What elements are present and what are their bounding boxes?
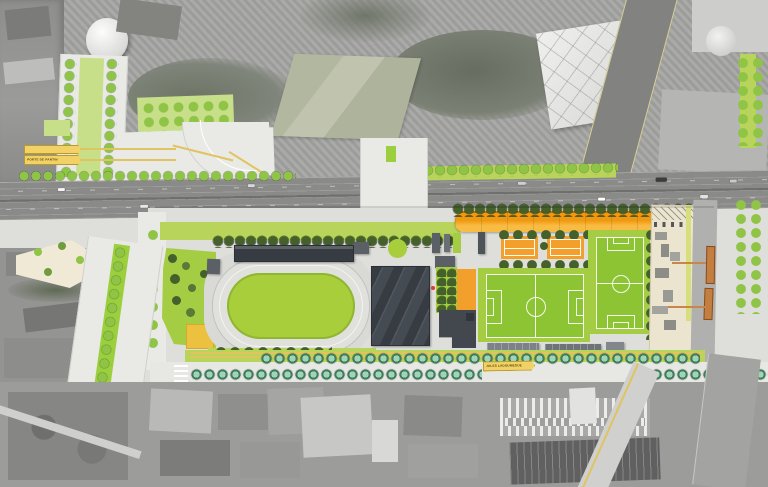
median-island [386, 146, 396, 162]
slab-building [478, 232, 485, 254]
tree-row [497, 228, 589, 239]
station-platform [706, 246, 716, 284]
roof-detail [466, 313, 474, 321]
tram-platform-labeled: JULES LADOUMEGUE [483, 361, 535, 372]
vehicle [700, 195, 708, 198]
photo-block [149, 388, 213, 433]
footbridge [668, 306, 706, 308]
photo-roof-light [300, 394, 373, 458]
soccer-field-east [596, 237, 644, 329]
tennis-court [547, 236, 584, 259]
vehicle [58, 188, 65, 191]
footprint [655, 232, 667, 240]
goal-box [613, 322, 629, 329]
court-net-line [504, 248, 535, 249]
tree [170, 274, 180, 284]
tram-stop-label-north: PORTE DE PANTIN [25, 158, 58, 161]
tram-track-line [80, 148, 176, 150]
photo-block [240, 442, 300, 478]
sports-hall-building [371, 266, 430, 346]
park-lawn [271, 54, 421, 140]
green-strip [453, 233, 461, 253]
track-infield [227, 273, 355, 339]
footprint [652, 306, 668, 314]
photo-block [160, 440, 230, 476]
vehicle [248, 184, 255, 187]
tram-platform-labeled: PORTE DE PANTIN [24, 155, 82, 165]
vehicle [730, 179, 737, 182]
vehicle-truck [656, 178, 667, 182]
footprint [661, 244, 669, 257]
vehicle [598, 198, 605, 201]
center-circle [612, 275, 630, 293]
tree [540, 242, 548, 250]
tennis-court [501, 236, 538, 259]
photo-block [403, 395, 462, 437]
tree-row [734, 198, 764, 314]
tree [76, 256, 84, 264]
tram-track-line [80, 159, 176, 161]
annex-building [354, 242, 369, 254]
center-circle [526, 297, 546, 317]
tree [186, 308, 195, 317]
red-marker [431, 286, 435, 290]
plan-edge-shadow [148, 206, 714, 208]
tree-row [18, 170, 296, 183]
photo-block [4, 338, 74, 378]
tree-grove [436, 268, 457, 312]
tree [172, 296, 181, 305]
tree [182, 262, 190, 270]
goal-box [613, 237, 629, 244]
footprint [655, 268, 669, 278]
station-platform [703, 288, 713, 320]
footprint [663, 290, 673, 302]
tree-row [190, 368, 482, 381]
goal-box [576, 298, 584, 316]
soccer-field-west [486, 274, 584, 338]
goal-box [486, 298, 494, 316]
photo-block [372, 420, 398, 462]
tree [58, 242, 66, 250]
court-net-line [550, 248, 581, 249]
running-track [212, 258, 370, 354]
slab-building [432, 233, 440, 253]
photo-block [218, 394, 268, 430]
tree-row [736, 56, 764, 146]
vehicle [140, 205, 148, 208]
tram-platform [24, 145, 82, 154]
green-verge [44, 120, 70, 136]
crosswalk [174, 362, 188, 382]
photo-dome-small [706, 26, 736, 56]
vehicle [518, 182, 526, 185]
annex-building [207, 259, 221, 274]
tree [168, 254, 177, 263]
tree [188, 284, 196, 292]
footbridge [672, 262, 706, 264]
footprint [664, 320, 676, 330]
orange-playground [457, 269, 476, 310]
photo-shed-white [569, 387, 597, 424]
photo-block [5, 6, 52, 40]
grandstand-building [234, 245, 354, 262]
slab-building [444, 234, 450, 252]
photo-block [408, 444, 478, 478]
tree [44, 268, 52, 276]
tram-stop-label-south: JULES LADOUMEGUE [484, 364, 522, 368]
footprint [670, 252, 680, 261]
tree [34, 248, 42, 256]
lawn-circle [388, 239, 407, 258]
masterplan-aerial-view: PORTE DE PANTIN [0, 0, 768, 487]
